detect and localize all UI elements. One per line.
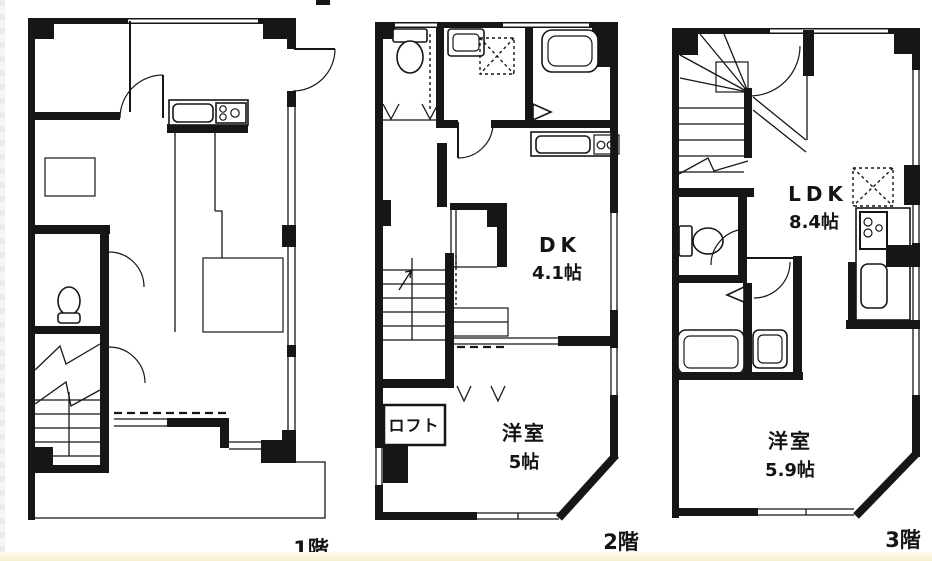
room-label-dk: DK <box>539 233 581 257</box>
stairs-2f <box>383 258 445 340</box>
vanity-3f <box>678 330 744 374</box>
hall-door-2f <box>458 122 493 158</box>
cabinet-2f <box>450 308 508 401</box>
kitchen-counter-2f <box>531 132 619 156</box>
right-wall-windows-1f <box>282 107 296 463</box>
closet-2f <box>450 203 507 267</box>
kitchen-sink-1f <box>173 104 213 122</box>
room-door-1f <box>120 75 163 118</box>
floor-label-3: 3階 <box>885 528 921 552</box>
washing-machine-space-2f <box>480 38 514 74</box>
stair-door-3f <box>750 46 800 96</box>
floor-1-plan <box>28 18 335 520</box>
washroom-2f <box>448 29 514 74</box>
chamfer-wall-3f <box>856 454 916 516</box>
floor-label-2: 2階 <box>603 530 639 554</box>
washroom-door-mark-3f <box>727 287 744 302</box>
kitchen-sink-2f <box>536 136 590 153</box>
entrance-door-1f <box>293 49 335 91</box>
floorplan-canvas: 1階 <box>0 0 932 561</box>
room-size-dk: 4.1帖 <box>532 262 582 284</box>
shower-door-3f <box>754 262 790 298</box>
room-size-bedroom-2f: 5帖 <box>509 451 540 473</box>
kitchen-counter-1f <box>167 100 248 133</box>
vanity-1f <box>45 158 95 196</box>
toilet-3f <box>679 226 723 256</box>
folding-door-mark-2f <box>383 104 399 119</box>
refrigerator-space-3f <box>853 168 893 206</box>
stairs-1f <box>35 344 100 467</box>
room-label-bedroom-3f: 洋室 <box>768 429 812 453</box>
bath-door-mark-2f <box>533 104 551 120</box>
shower-basin-3f <box>753 330 787 368</box>
stove-1f <box>216 103 246 123</box>
room-label-ldk: LDK <box>788 182 848 206</box>
right-wall-windows-2f <box>610 213 618 458</box>
room-label-bedroom-2f: 洋室 <box>502 421 546 445</box>
room-size-bedroom-3f: 5.9帖 <box>765 459 815 481</box>
footer-strip <box>0 552 932 561</box>
toilet-1f <box>58 287 80 323</box>
crop-artifact <box>316 0 330 5</box>
floorplan-drawing: 1階 <box>0 0 932 561</box>
kitchen-sink-3f <box>861 264 887 308</box>
floor-2-plan <box>375 22 619 520</box>
door-arc-stair-1f <box>109 347 145 383</box>
chamfer-wall-2f <box>559 455 616 518</box>
room-size-ldk: 8.4帖 <box>789 211 839 233</box>
bathtub-2f <box>542 30 598 72</box>
door-arc-hall-1f <box>109 252 144 287</box>
loft-label: ロフト <box>388 416 439 435</box>
toilet-2f <box>393 29 427 73</box>
